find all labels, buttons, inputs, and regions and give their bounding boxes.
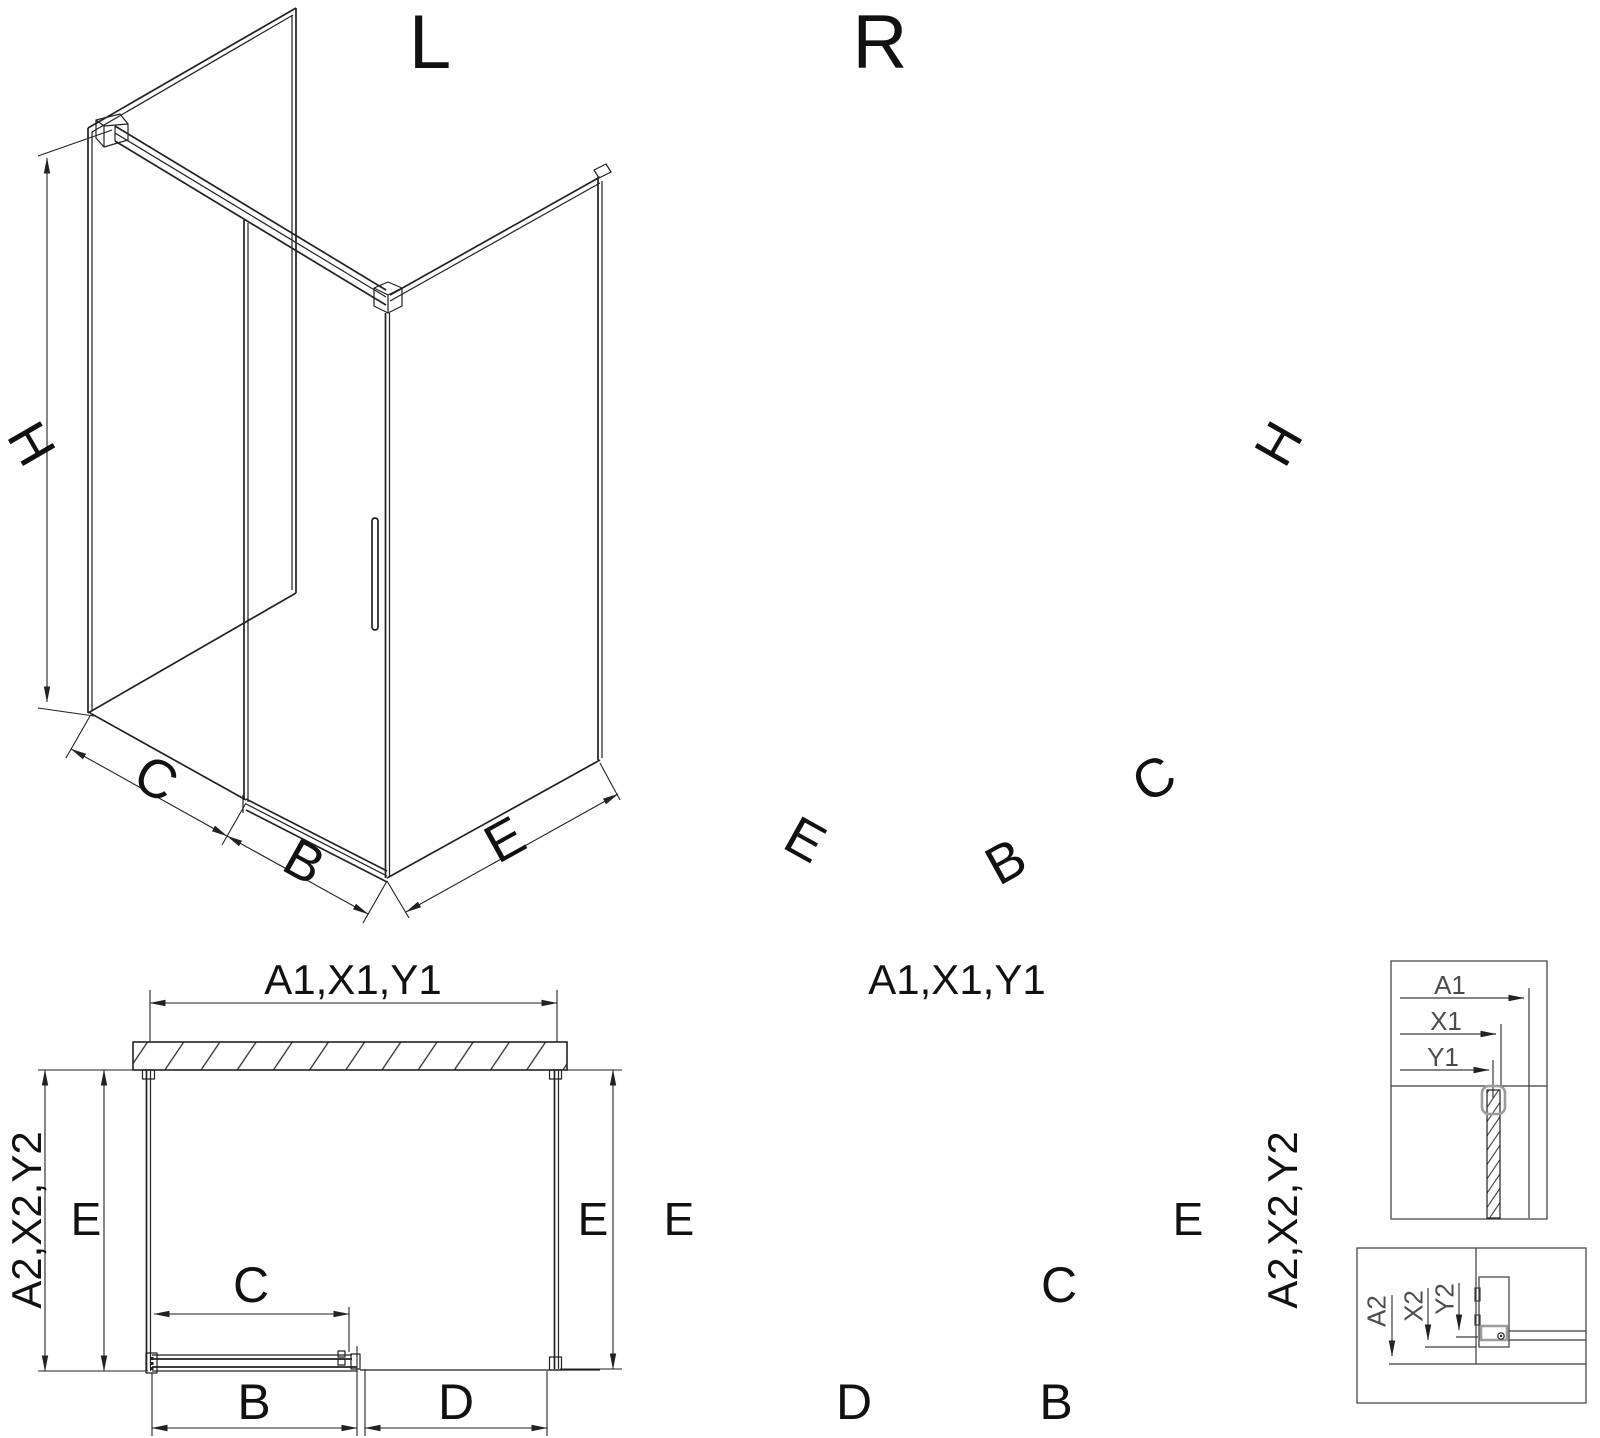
- detail-y2: Y2: [1430, 1283, 1460, 1315]
- dim-b-right: B: [976, 827, 1037, 897]
- plan-view-left: [38, 990, 622, 1436]
- dim-h-right: H: [1243, 412, 1314, 476]
- detail-a1: A1: [1434, 970, 1466, 1000]
- plan-right-b: B: [1039, 1374, 1072, 1430]
- detail-a2: A2: [1362, 1295, 1392, 1327]
- technical-drawing-page: L H C B E R H C B E A1,X1,Y1 A2,X2,Y2 E …: [0, 0, 1600, 1438]
- dim-b-left: B: [274, 827, 335, 897]
- dim-c-left: C: [124, 743, 187, 814]
- plan-right-c: C: [1041, 1257, 1077, 1313]
- dim-e-left: E: [475, 805, 536, 875]
- dim-h-left: H: [0, 412, 67, 476]
- iso-right-title: R: [853, 0, 908, 85]
- dim-c-right: C: [1122, 743, 1185, 814]
- detail-wall-profile: [1391, 961, 1547, 1219]
- plan-right-width-label: A1,X1,Y1: [868, 956, 1045, 1003]
- plan-left-c: C: [233, 1257, 269, 1313]
- detail-x1: X1: [1430, 1006, 1462, 1036]
- plan-right-e-left: E: [664, 1193, 695, 1245]
- detail-y1: Y1: [1427, 1042, 1459, 1072]
- plan-left-width-label: A1,X1,Y1: [264, 956, 441, 1003]
- plan-right-e-right: E: [1173, 1193, 1204, 1245]
- detail-x2: X2: [1399, 1290, 1429, 1322]
- labels-layer: L H C B E R H C B E A1,X1,Y1 A2,X2,Y2 E …: [0, 0, 1466, 1430]
- plan-left-e-left: E: [71, 1193, 102, 1245]
- plan-left-e-right: E: [578, 1193, 609, 1245]
- shower-enclosure-dimension-diagram: L H C B E R H C B E A1,X1,Y1 A2,X2,Y2 E …: [0, 0, 1600, 1438]
- plan-left-depth-label: A2,X2,Y2: [3, 1131, 50, 1308]
- plan-right-d: D: [836, 1374, 872, 1430]
- iso-view-left: [38, 8, 620, 923]
- glass-panel-section: [1487, 1090, 1500, 1218]
- plan-left-b: B: [237, 1374, 270, 1430]
- dim-e-right: E: [775, 805, 836, 875]
- iso-left-title: L: [409, 0, 451, 85]
- plan-right-depth-label: A2,X2,Y2: [1259, 1131, 1306, 1308]
- plan-left-d: D: [438, 1374, 474, 1430]
